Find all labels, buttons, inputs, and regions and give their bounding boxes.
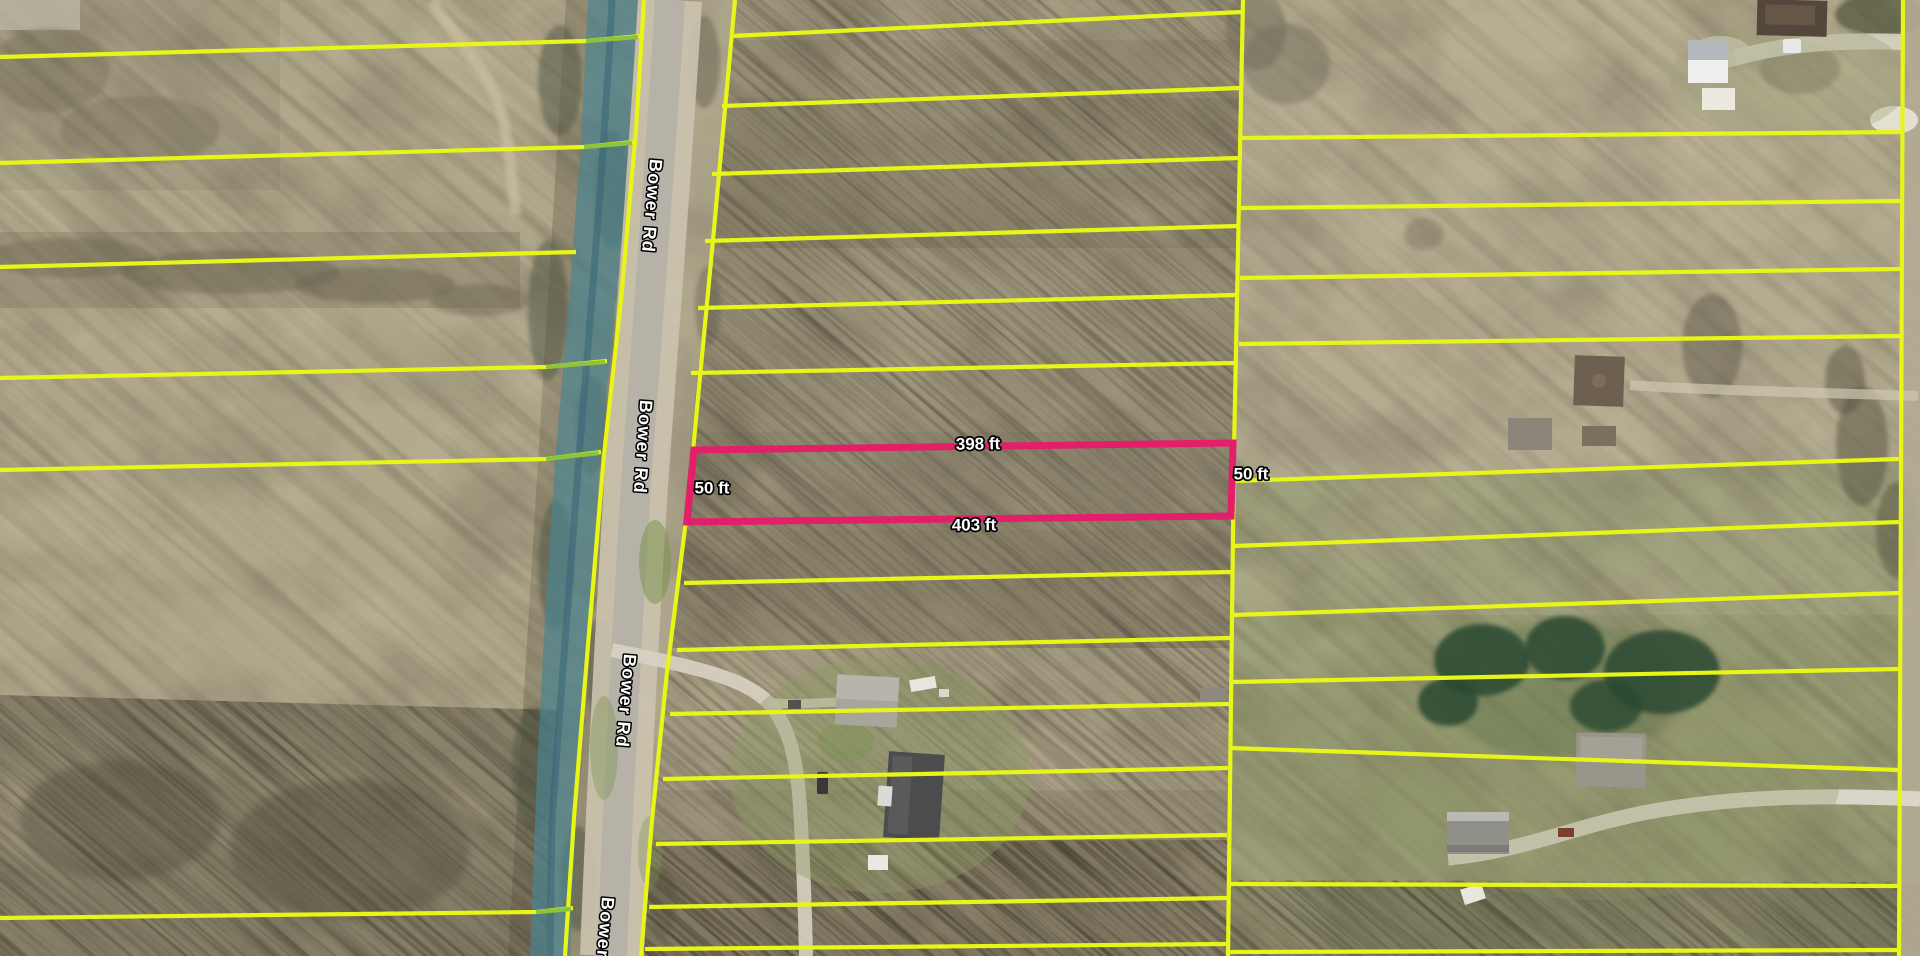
dim-bottom: 403 ft	[952, 515, 997, 534]
dim-left: 50 ft	[695, 479, 730, 498]
field-patch	[0, 0, 80, 30]
shed-center-white	[868, 855, 888, 870]
lawn-patch	[818, 722, 874, 762]
roadside-grass	[590, 696, 618, 800]
car-center-2	[788, 700, 801, 709]
shed-midright-1	[1508, 418, 1552, 450]
parcel-boundary-east-11	[1228, 950, 1898, 952]
barn-lowerright	[1447, 812, 1509, 854]
parcel-boundary-crossing-5	[536, 909, 571, 912]
house-center-grey	[835, 674, 900, 727]
aerial-imagery	[0, 0, 1920, 956]
map-canvas[interactable]: Bower RdBower RdBower RdBower Rd398 ft40…	[0, 0, 1920, 956]
garage-roof-topright	[1688, 40, 1728, 60]
dim-right: 50 ft	[1234, 465, 1269, 484]
house-topright	[1757, 0, 1828, 37]
roadside-grass	[639, 520, 671, 604]
dim-top: 398 ft	[956, 434, 1001, 454]
house-midright	[1573, 355, 1625, 407]
trailer-lowerright	[1558, 828, 1574, 837]
car-topright	[1783, 39, 1801, 53]
shed-midright-2	[1582, 426, 1616, 446]
parcel-boundary-east-10	[1229, 884, 1898, 886]
shed-topright	[1702, 88, 1735, 110]
